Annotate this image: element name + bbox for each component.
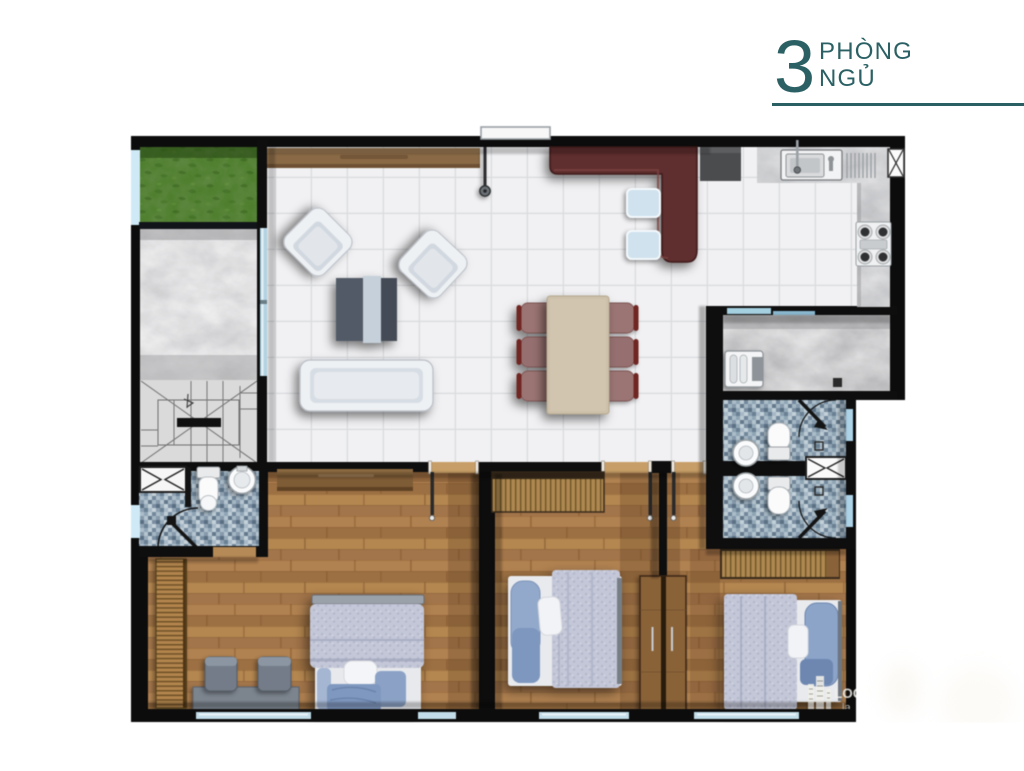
svg-text:LOC PH: LOC PH [834, 686, 885, 701]
